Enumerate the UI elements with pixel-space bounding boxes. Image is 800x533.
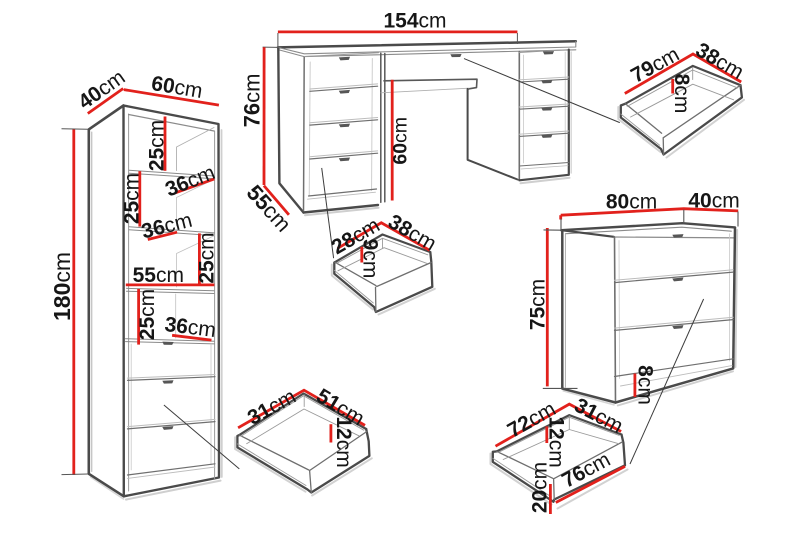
svg-text:154cm: 154cm	[383, 10, 446, 33]
svg-text:25cm: 25cm	[145, 120, 168, 171]
svg-text:36cm: 36cm	[163, 313, 217, 342]
svg-text:80cm: 80cm	[606, 191, 657, 214]
svg-text:12cm: 12cm	[332, 416, 355, 467]
svg-text:76cm: 76cm	[240, 74, 265, 128]
svg-text:12cm: 12cm	[544, 416, 567, 467]
svg-text:60cm: 60cm	[390, 117, 412, 165]
svg-text:9cm: 9cm	[359, 239, 382, 279]
svg-text:60cm: 60cm	[150, 72, 204, 103]
svg-text:8cm: 8cm	[670, 74, 693, 114]
svg-text:180cm: 180cm	[49, 252, 75, 321]
svg-text:75cm: 75cm	[526, 279, 549, 330]
svg-text:36cm: 36cm	[162, 161, 218, 202]
svg-text:20cm: 20cm	[529, 462, 552, 513]
svg-text:8cm: 8cm	[633, 365, 656, 405]
svg-text:55cm: 55cm	[242, 180, 297, 237]
svg-text:25cm: 25cm	[121, 173, 144, 224]
svg-text:40cm: 40cm	[688, 190, 739, 213]
svg-text:25cm: 25cm	[136, 289, 159, 340]
svg-text:25cm: 25cm	[196, 232, 219, 283]
svg-text:36cm: 36cm	[139, 209, 194, 244]
svg-text:31cm: 31cm	[244, 385, 300, 430]
svg-text:55cm: 55cm	[133, 264, 184, 287]
